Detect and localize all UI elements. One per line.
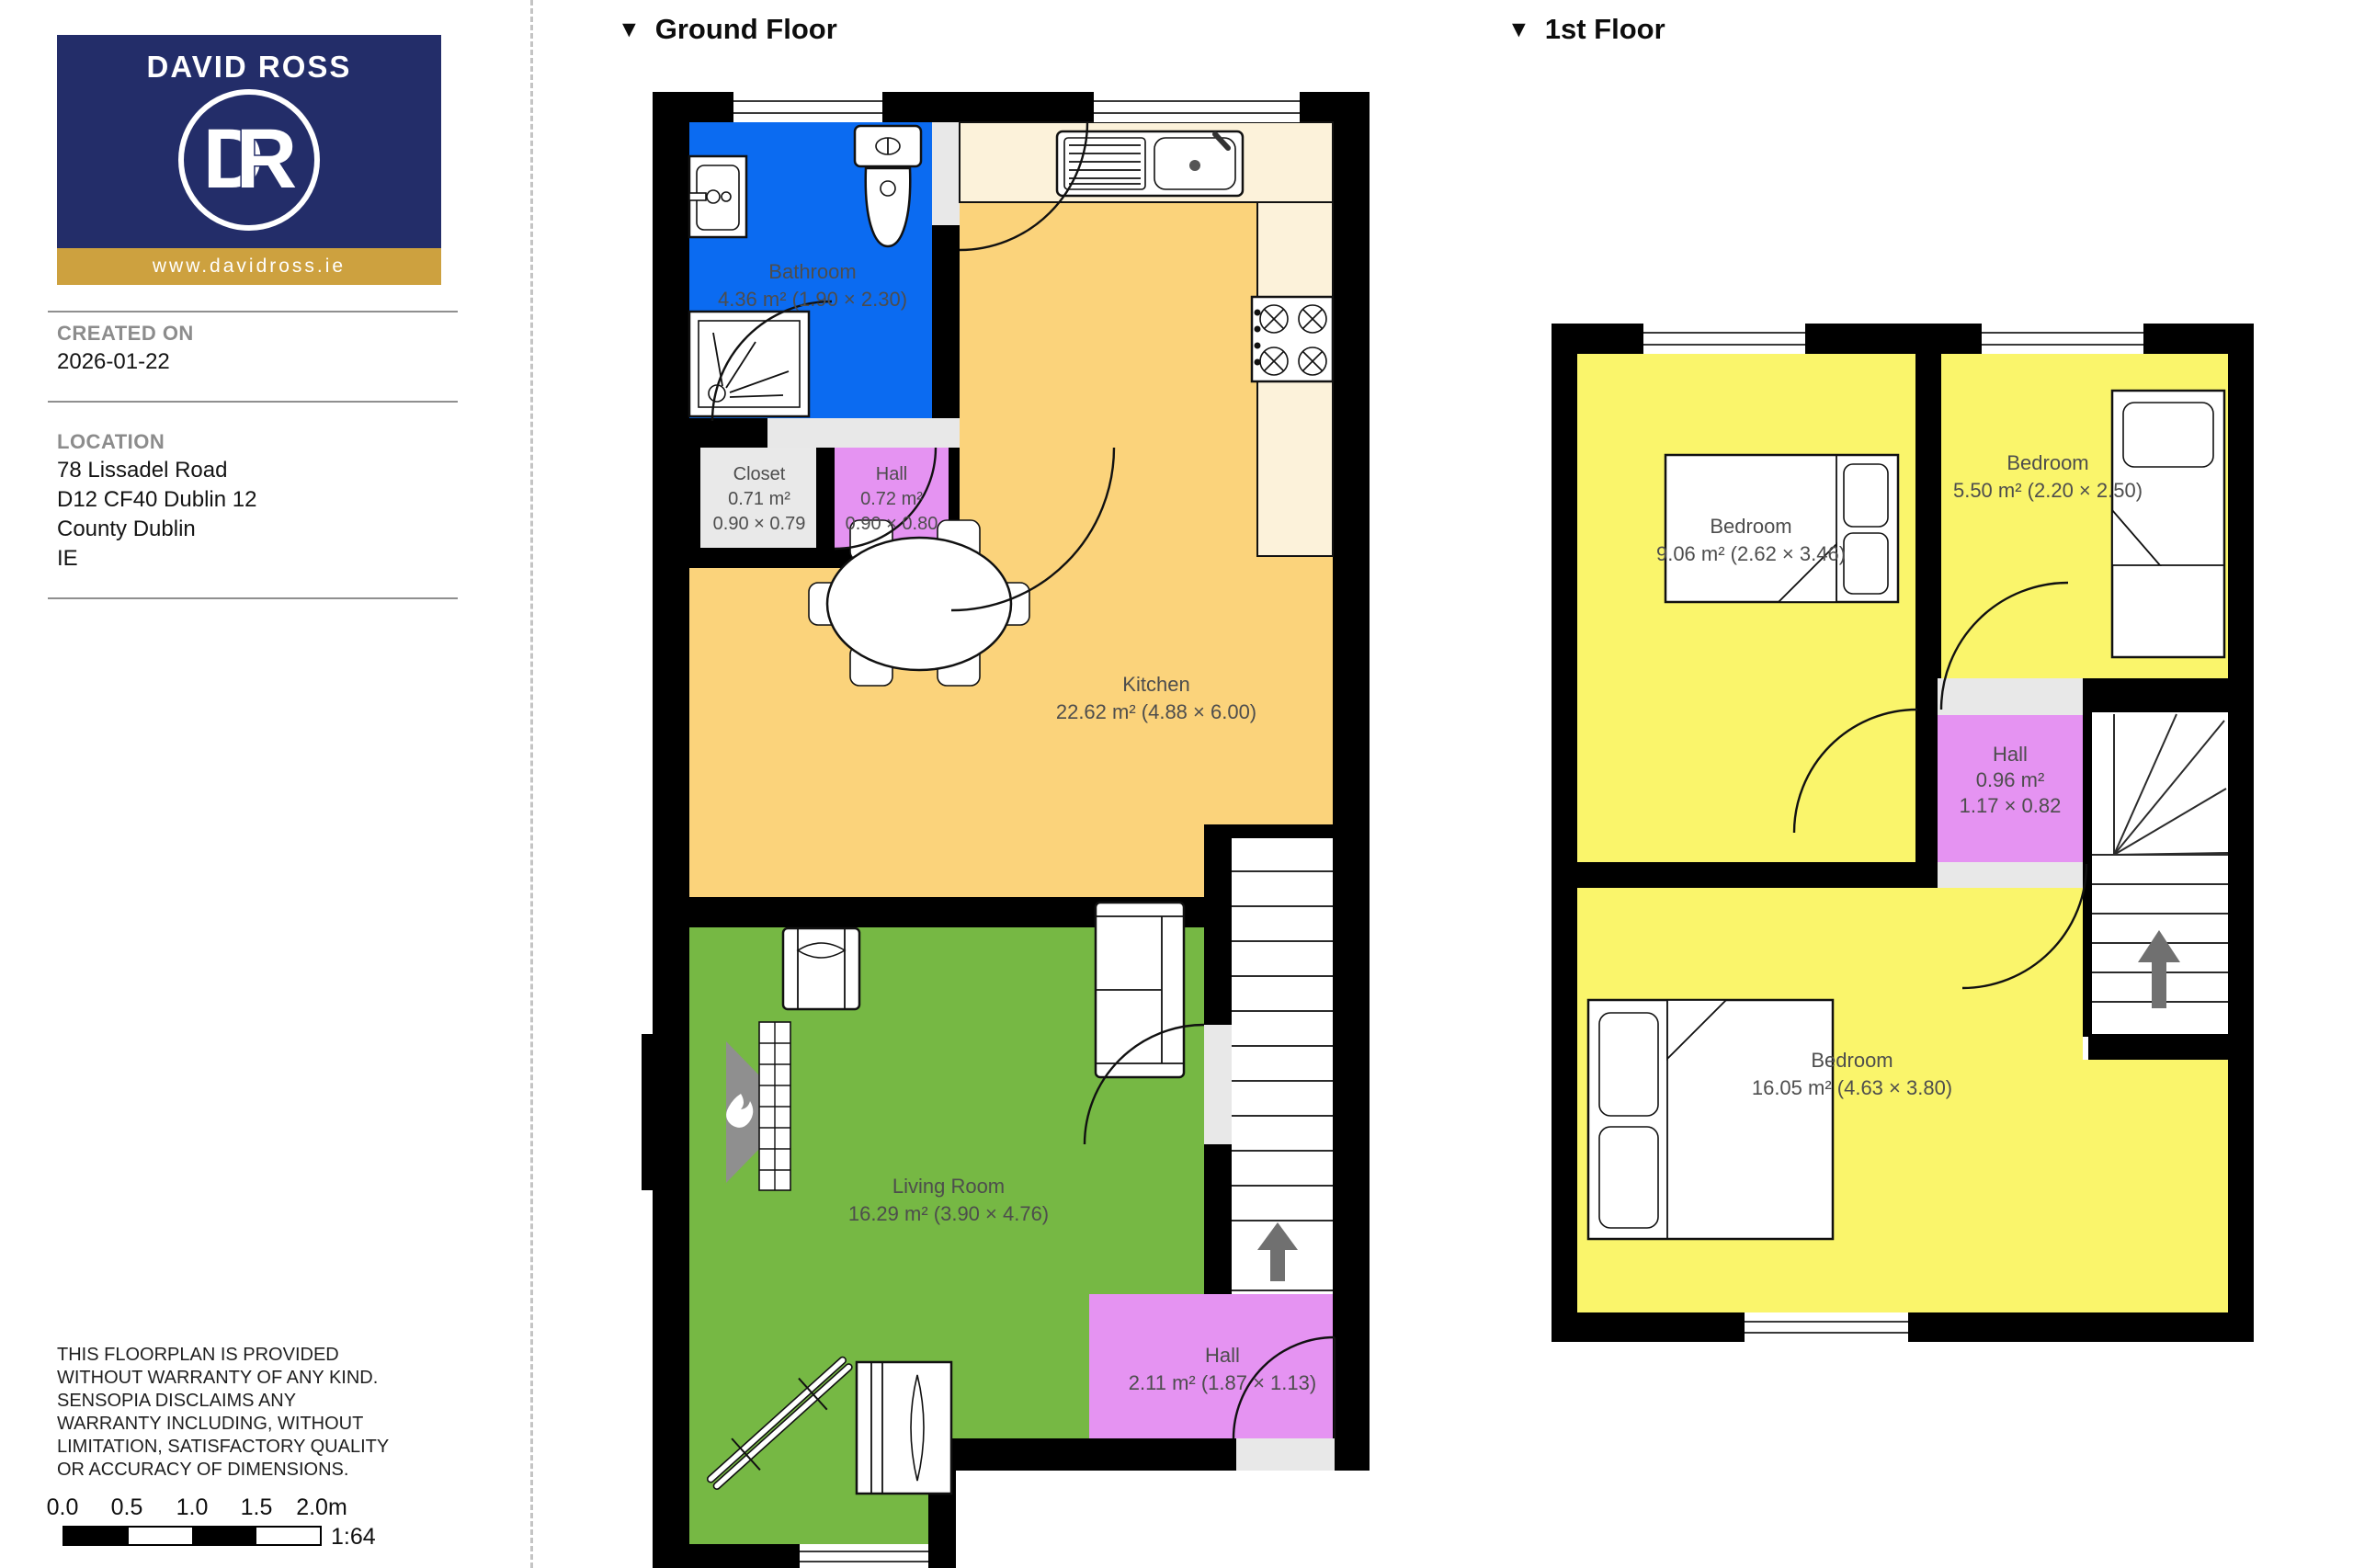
room-bedroom1 [1577,354,1915,862]
room-label: Bathroom [768,260,856,283]
scale-tick: 0.0 [30,1494,95,1521]
floorplan-ground: Bathroom 4.36 m² (1.90 × 2.30) Closet 0.… [634,78,1388,1568]
divider-line [48,597,458,599]
staircase-icon [2092,712,2228,1034]
single-bed-icon [2112,391,2224,657]
room-label: 16.29 m² (3.90 × 4.76) [848,1202,1049,1225]
room-label: Hall [876,464,907,484]
triangle-marker-icon: ▼ [618,17,641,43]
divider-line [48,401,458,403]
room-label: 0.90 × 0.79 [713,514,806,534]
created-on-label: CREATED ON [57,322,194,346]
triangle-marker-icon: ▼ [1507,17,1530,43]
address-line: 78 Lissadel Road [57,456,227,485]
agency-logo: DAVID ROSS D R www.davidross.ie [57,35,441,285]
bathroom-sink-icon [689,156,746,237]
room-label: 5.50 m² (2.20 × 2.50) [1953,479,2143,502]
room-label: 1.17 × 0.82 [1960,794,2062,817]
ground-floor-title-text: Ground Floor [655,13,837,46]
room-label: Bedroom [2006,451,2088,474]
agency-name: DAVID ROSS [147,50,352,85]
section-divider [530,0,533,1568]
room-label: 4.36 m² (1.90 × 2.30) [718,288,907,311]
room-label: Bedroom [1710,515,1791,538]
address-line: County Dublin [57,515,196,544]
created-on-value: 2026-01-22 [57,347,170,377]
room-label: 0.90 × 0.80 [846,514,938,534]
room-label: Closet [733,464,786,484]
first-floor-title-text: 1st Floor [1545,13,1665,46]
scale-tick: 2.0m [290,1494,354,1521]
floorplan-first: Bedroom 9.06 m² (2.62 × 3.46) Bedroom 5.… [1526,303,2270,1360]
first-floor-title: ▼ 1st Floor [1507,13,1665,46]
svg-text:R: R [236,112,297,206]
room-label: 0.71 m² [728,489,790,509]
floorplan-sheet: DAVID ROSS D R www.davidross.ie CREATED … [0,0,2353,1568]
address-line: IE [57,544,78,574]
room-label: Kitchen [1122,673,1189,696]
divider-line [48,311,458,312]
location-label: LOCATION [57,430,165,454]
room-label: 0.72 m² [860,489,923,509]
room-label: Hall [1993,743,2028,766]
shower-icon [689,312,809,416]
logo-navy-panel: DAVID ROSS D R [57,35,441,248]
scale-bar [63,1526,322,1546]
room-label: Bedroom [1811,1049,1893,1072]
room-label: 22.62 m² (4.88 × 6.00) [1056,700,1256,723]
room-label: 16.05 m² (4.63 × 3.80) [1752,1076,1952,1099]
ground-floor-title: ▼ Ground Floor [618,13,837,46]
scale-ratio: 1:64 [331,1524,376,1551]
sofa-icon [1096,903,1184,1077]
scale-tick: 1.0 [160,1494,224,1521]
armchair-icon [783,928,859,1009]
room-label: 2.11 m² (1.87 × 1.13) [1129,1371,1316,1394]
dr-monogram-icon: D R [171,85,327,239]
stove-icon [1252,297,1333,381]
room-label: 9.06 m² (2.62 × 3.46) [1656,542,1846,565]
room-label: Hall [1205,1344,1240,1367]
scale-tick: 0.5 [95,1494,159,1521]
address-line: D12 CF40 Dublin 12 [57,485,256,515]
daybed-icon [857,1362,951,1494]
scale-tick: 1.5 [224,1494,289,1521]
double-bed-icon [1588,1000,1833,1239]
agency-website: www.davidross.ie [57,248,441,285]
disclaimer-text: THIS FLOORPLAN IS PROVIDED WITHOUT WARRA… [57,1344,390,1482]
room-label: 0.96 m² [1976,768,2045,791]
staircase-icon [1232,838,1333,1294]
room-label: Living Room [892,1175,1005,1198]
